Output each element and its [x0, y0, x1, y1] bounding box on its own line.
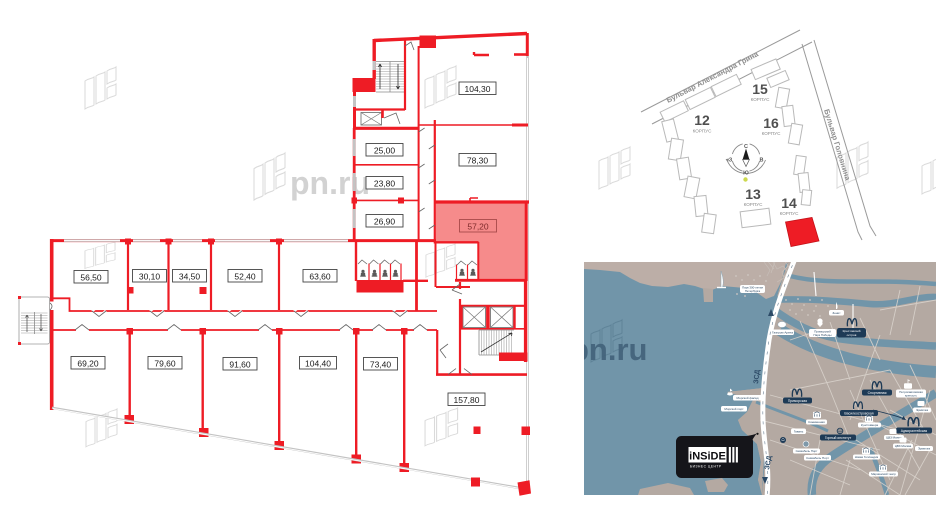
- svg-text:Кунсткамера: Кунсткамера: [861, 423, 879, 427]
- svg-text:Петербурга: Петербурга: [745, 289, 761, 293]
- svg-text:30,10: 30,10: [139, 272, 161, 282]
- svg-text:79,60: 79,60: [154, 359, 176, 369]
- svg-text:iNSiDE: iNSiDE: [689, 451, 726, 463]
- svg-text:73,40: 73,40: [370, 360, 392, 370]
- svg-text:БИЗНЕС ЦЕНТР: БИЗНЕС ЦЕНТР: [690, 465, 722, 469]
- svg-text:Эрмитаж: Эрмитаж: [918, 447, 930, 451]
- svg-text:Морской порт: Морской порт: [724, 407, 744, 411]
- svg-text:Морской фасад: Морской фасад: [737, 396, 759, 400]
- svg-text:34,50: 34,50: [179, 272, 201, 282]
- svg-text:pn.ru: pn.ru: [290, 165, 370, 201]
- svg-text:Приморская: Приморская: [788, 399, 807, 403]
- svg-text:Адмиралтейская: Адмиралтейская: [901, 429, 928, 433]
- svg-text:91,60: 91,60: [229, 360, 251, 370]
- svg-text:ЗСД: ЗСД: [753, 369, 761, 384]
- svg-text:15: 15: [752, 81, 768, 97]
- svg-text:12: 12: [694, 112, 710, 128]
- svg-text:56,50: 56,50: [80, 273, 102, 283]
- svg-text:16: 16: [763, 115, 779, 131]
- svg-text:23,80: 23,80: [374, 179, 396, 189]
- svg-text:В: В: [760, 158, 764, 164]
- svg-text:КОРПУС: КОРПУС: [762, 131, 781, 136]
- svg-text:26,90: 26,90: [374, 217, 396, 227]
- svg-text:остров: остров: [847, 333, 857, 337]
- svg-text:14: 14: [781, 195, 797, 211]
- svg-text:Василеостровская: Василеостровская: [844, 411, 873, 415]
- svg-text:104,30: 104,30: [465, 84, 491, 94]
- svg-text:pn.ru: pn.ru: [570, 332, 648, 367]
- svg-text:Газпром Арена: Газпром Арена: [772, 330, 793, 334]
- svg-text:63,60: 63,60: [309, 272, 331, 282]
- svg-text:КОРПУС: КОРПУС: [751, 97, 770, 102]
- svg-text:Севкабель Порт: Севкабель Порт: [806, 456, 829, 460]
- svg-text:С: С: [744, 144, 748, 150]
- svg-text:157,80: 157,80: [454, 395, 480, 405]
- svg-text:Горный институт: Горный институт: [825, 436, 852, 440]
- svg-text:КОРПУС: КОРПУС: [780, 211, 799, 216]
- svg-text:69,20: 69,20: [77, 359, 99, 369]
- svg-text:Спортивная: Спортивная: [868, 391, 887, 395]
- svg-text:Парк Победы: Парк Победы: [814, 333, 832, 337]
- svg-text:КОРПУС: КОРПУС: [744, 202, 763, 207]
- svg-text:крепость: крепость: [905, 393, 917, 397]
- svg-text:104,40: 104,40: [305, 359, 331, 369]
- svg-text:52,40: 52,40: [234, 272, 256, 282]
- svg-text:Зенит: Зенит: [832, 311, 841, 315]
- svg-text:13: 13: [745, 186, 761, 202]
- svg-text:Мариинский театр: Мариинский театр: [871, 472, 896, 476]
- svg-text:Кожевенная: Кожевенная: [808, 420, 825, 424]
- svg-text:Ю: Ю: [743, 171, 749, 177]
- svg-text:25,00: 25,00: [374, 146, 396, 156]
- svg-text:Эрмитаж: Эрмитаж: [916, 408, 928, 412]
- svg-text:Новая Голландия: Новая Голландия: [855, 455, 879, 459]
- svg-text:57,20: 57,20: [467, 222, 489, 232]
- svg-text:Севкабель Порт: Севкабель Порт: [796, 449, 819, 453]
- svg-text:З: З: [729, 158, 733, 164]
- svg-text:Гавань: Гавань: [794, 430, 804, 434]
- svg-text:КОРПУС: КОРПУС: [693, 129, 712, 134]
- svg-text:ЦВЗ Москва: ЦВЗ Москва: [895, 444, 912, 448]
- svg-text:78,30: 78,30: [467, 156, 489, 166]
